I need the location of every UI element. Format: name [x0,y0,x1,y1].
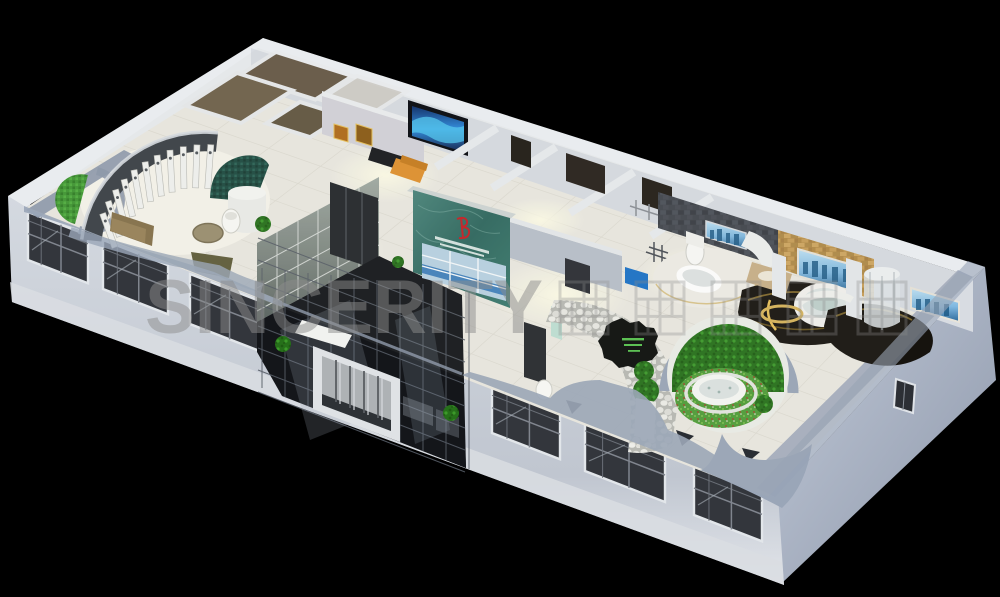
svg-text:SINCERITY: SINCERITY [145,265,543,350]
